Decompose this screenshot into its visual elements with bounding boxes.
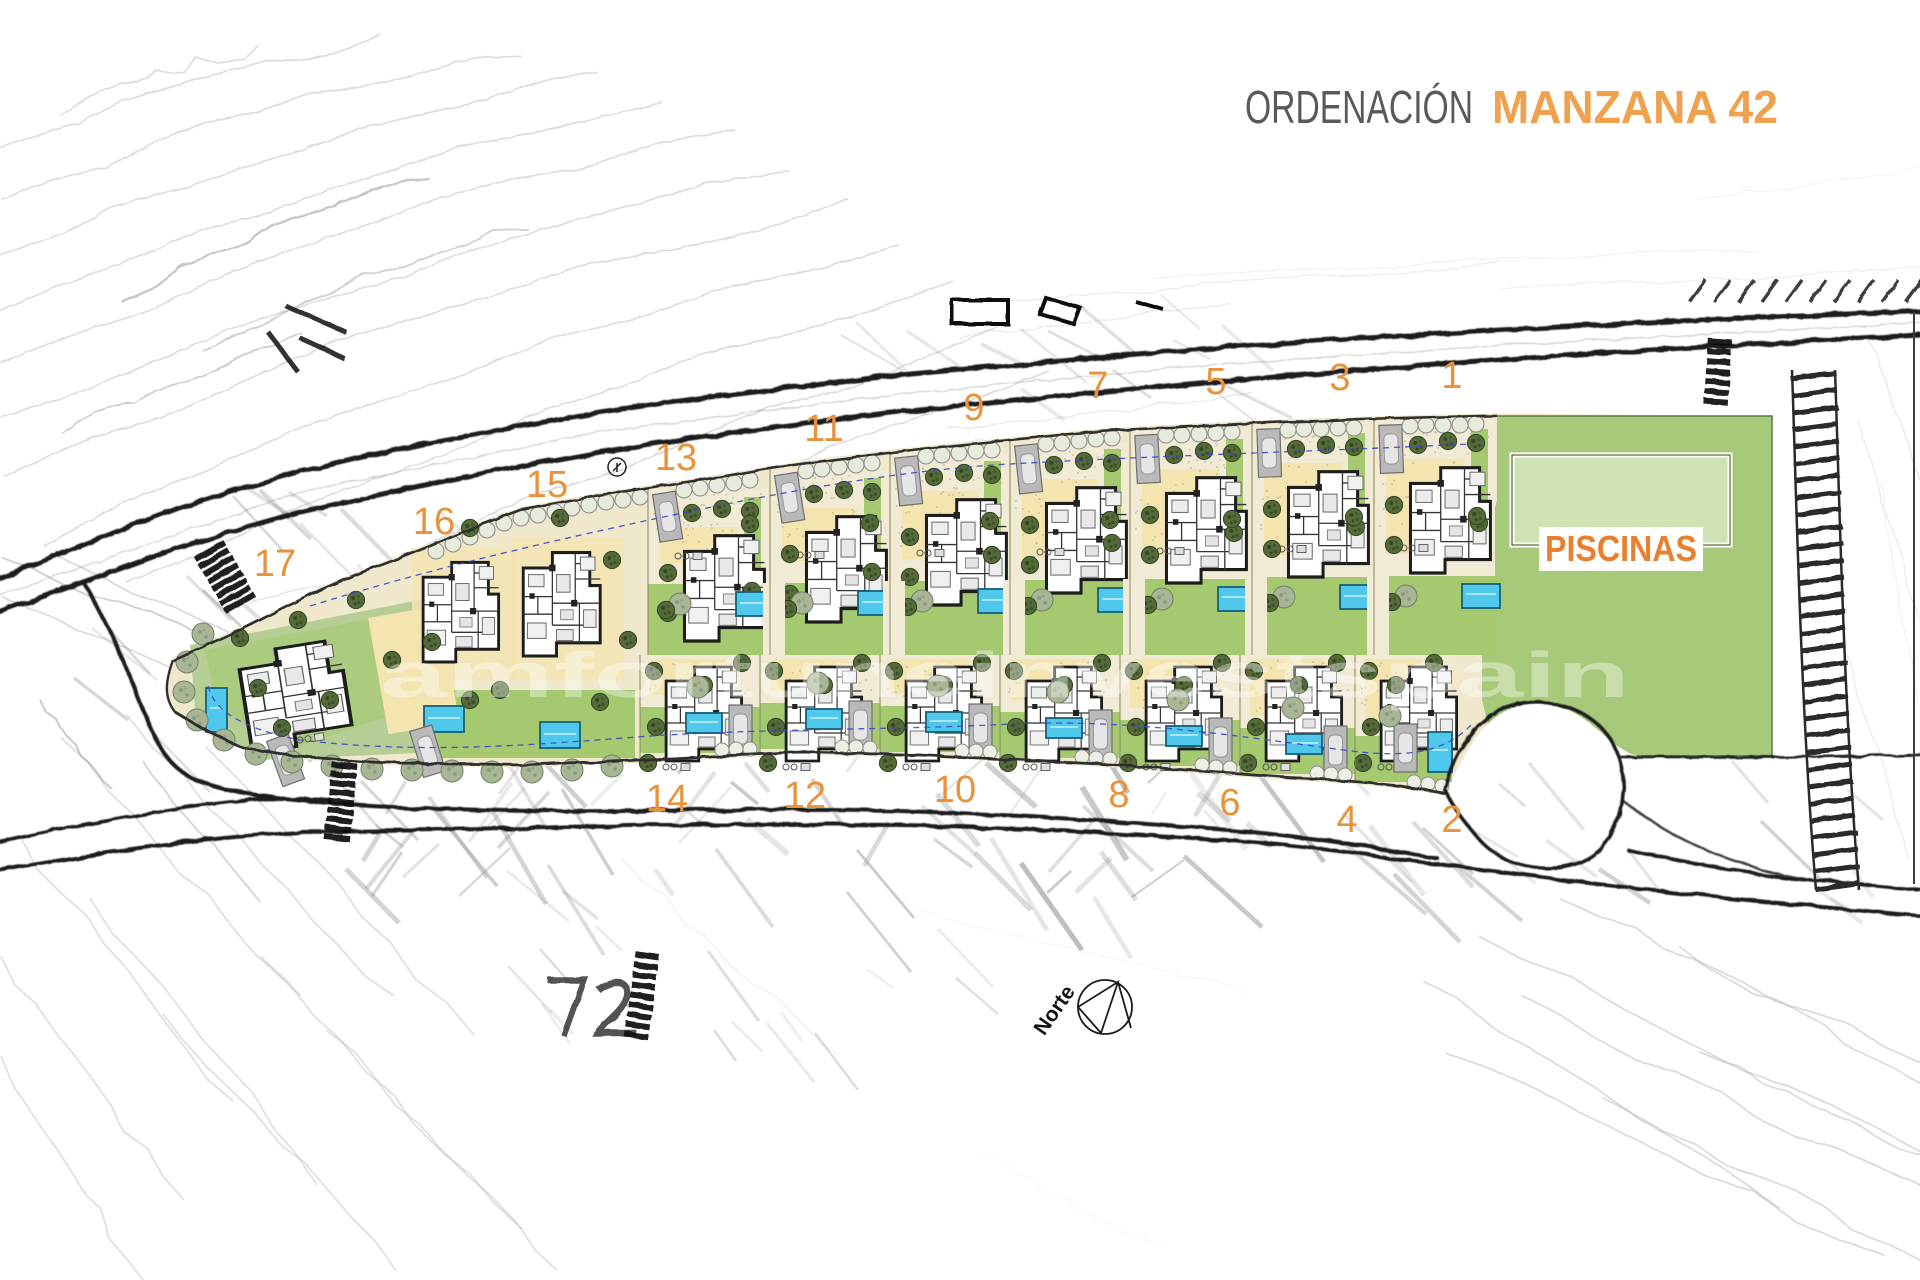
svg-text:10: 10: [934, 769, 976, 811]
svg-text:11: 11: [804, 408, 843, 450]
svg-text:5: 5: [1205, 361, 1226, 403]
svg-text:4: 4: [1336, 799, 1357, 841]
svg-text:amfortuneinvestspain: amfortuneinvestspain: [380, 639, 1630, 711]
svg-text:7: 7: [1087, 365, 1108, 407]
svg-text:1: 1: [1441, 355, 1462, 397]
svg-text:13: 13: [655, 437, 697, 479]
svg-text:6: 6: [1219, 782, 1240, 824]
svg-text:MANZANA 42: MANZANA 42: [1492, 81, 1778, 133]
svg-text:3: 3: [1329, 357, 1350, 399]
svg-text:ORDENACIÓN: ORDENACIÓN: [1245, 81, 1473, 133]
svg-text:9: 9: [963, 387, 984, 429]
svg-text:2: 2: [1441, 799, 1462, 841]
svg-text:15: 15: [526, 464, 568, 506]
svg-text:12: 12: [784, 775, 826, 817]
svg-text:14: 14: [646, 778, 688, 820]
svg-text:16: 16: [413, 501, 455, 543]
svg-text:PISCINAS: PISCINAS: [1545, 528, 1697, 569]
svg-text:17: 17: [254, 543, 296, 585]
svg-text:8: 8: [1108, 774, 1129, 816]
